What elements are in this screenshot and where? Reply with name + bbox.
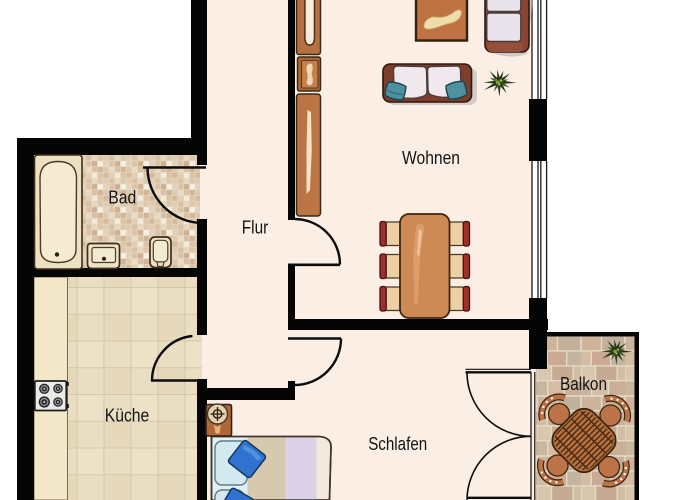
svg-text:Flur: Flur — [242, 218, 269, 238]
svg-text:Küche: Küche — [105, 405, 150, 425]
svg-text:Schlafen: Schlafen — [368, 434, 427, 454]
svg-text:Bad: Bad — [108, 187, 136, 207]
svg-text:Balkon: Balkon — [560, 374, 607, 394]
svg-text:Wohnen: Wohnen — [402, 148, 460, 168]
